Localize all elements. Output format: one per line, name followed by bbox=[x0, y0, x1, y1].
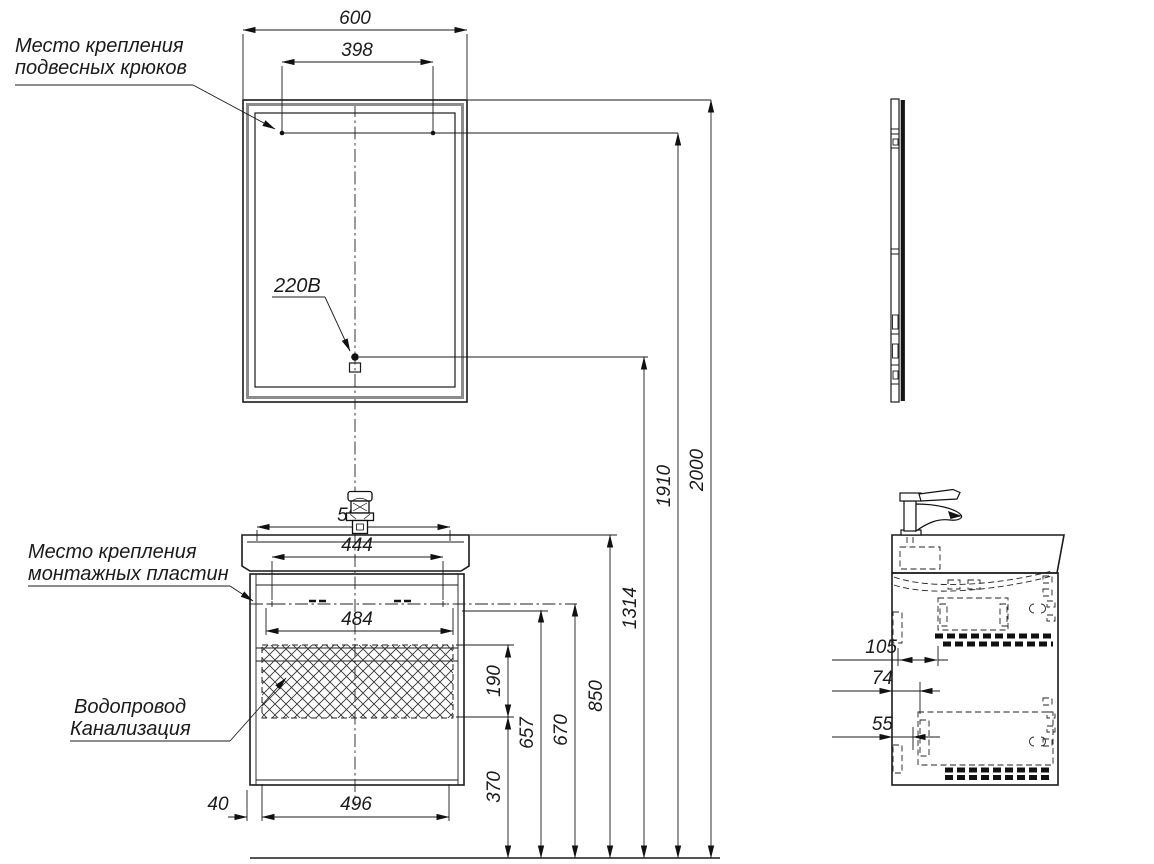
hook-point-left bbox=[280, 131, 285, 136]
plumbing-zone-hatch bbox=[262, 645, 453, 718]
dim-label-1910: 1910 bbox=[654, 464, 675, 507]
plates-mounting-label: Место крепления монтажных пластин bbox=[28, 541, 253, 601]
dim-label-657: 657 bbox=[517, 716, 538, 749]
front-view: 600 398 Место крепления подвесных крюков… bbox=[15, 8, 720, 858]
dim-label-496: 496 bbox=[340, 794, 372, 815]
installation-drawing-page: 600 398 Место крепления подвесных крюков… bbox=[0, 0, 1154, 864]
hooks-label-line1: Место крепления bbox=[15, 35, 184, 57]
dim-label-190: 190 bbox=[484, 665, 505, 697]
dim-label-850: 850 bbox=[586, 680, 607, 712]
faucet-side-view bbox=[900, 490, 962, 536]
dim-label-398: 398 bbox=[341, 40, 373, 61]
dim-bottom-widths: 40 496 bbox=[207, 784, 449, 821]
dim-label-670: 670 bbox=[551, 714, 572, 746]
plates-label-line2: монтажных пластин bbox=[28, 563, 229, 585]
vertical-dimensions: 190 370 657 670 850 1314 1910 2000 bbox=[456, 100, 711, 858]
outlet-label-text: 220В bbox=[273, 275, 321, 297]
plumbing-label-line2: Канализация bbox=[70, 718, 191, 740]
dim-label-484: 484 bbox=[341, 609, 373, 630]
plumbing-label-line1: Водопровод bbox=[74, 696, 186, 718]
power-outlet-symbol bbox=[350, 353, 649, 372]
dim-hook-spacing: 398 bbox=[282, 40, 433, 131]
dim-label-1314: 1314 bbox=[620, 587, 641, 629]
dim-label-600: 600 bbox=[339, 8, 371, 29]
dim-label-444: 444 bbox=[341, 535, 373, 556]
cabinet-side-body bbox=[892, 573, 1058, 785]
dim-label-2000: 2000 bbox=[687, 448, 708, 492]
dim-label-105: 105 bbox=[865, 637, 897, 658]
vanity-side-view: 105 74 55 bbox=[832, 490, 1064, 786]
technical-drawing-canvas: 600 398 Место крепления подвесных крюков… bbox=[0, 0, 1154, 864]
dim-label-74: 74 bbox=[872, 668, 893, 689]
outlet-label: 220В bbox=[272, 275, 350, 351]
mounting-plate-line bbox=[250, 601, 577, 604]
basin-side-profile bbox=[892, 535, 1064, 573]
hooks-mounting-label: Место крепления подвесных крюков bbox=[15, 35, 275, 129]
dim-plate-spacing-outer: 484 bbox=[266, 608, 453, 635]
side-dimensions: 105 74 55 bbox=[832, 637, 948, 750]
dim-label-40: 40 bbox=[207, 794, 229, 815]
dim-label-370: 370 bbox=[484, 771, 505, 803]
hook-point-right bbox=[431, 131, 436, 136]
dim-label-55: 55 bbox=[872, 714, 894, 735]
mirror-side-view bbox=[891, 99, 903, 402]
plates-label-line1: Место крепления bbox=[28, 541, 197, 563]
hooks-label-line2: подвесных крюков bbox=[15, 57, 187, 79]
plumbing-label: Водопровод Канализация bbox=[70, 678, 286, 741]
